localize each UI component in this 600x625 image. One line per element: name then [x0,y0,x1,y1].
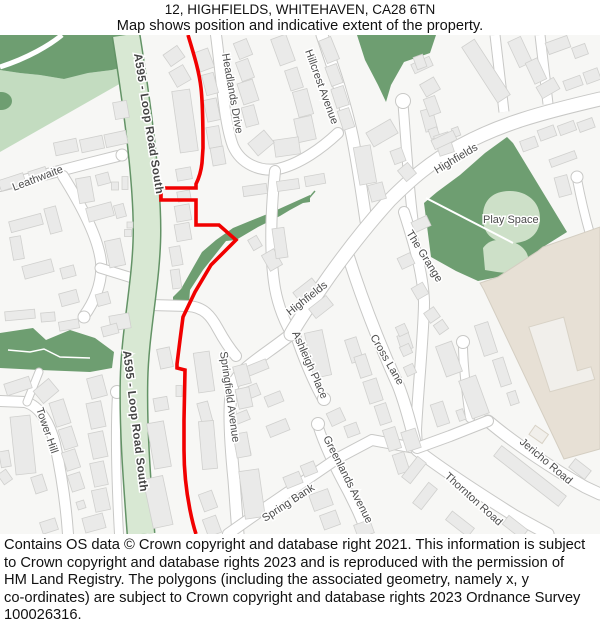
svg-text:Play Space: Play Space [483,214,539,226]
